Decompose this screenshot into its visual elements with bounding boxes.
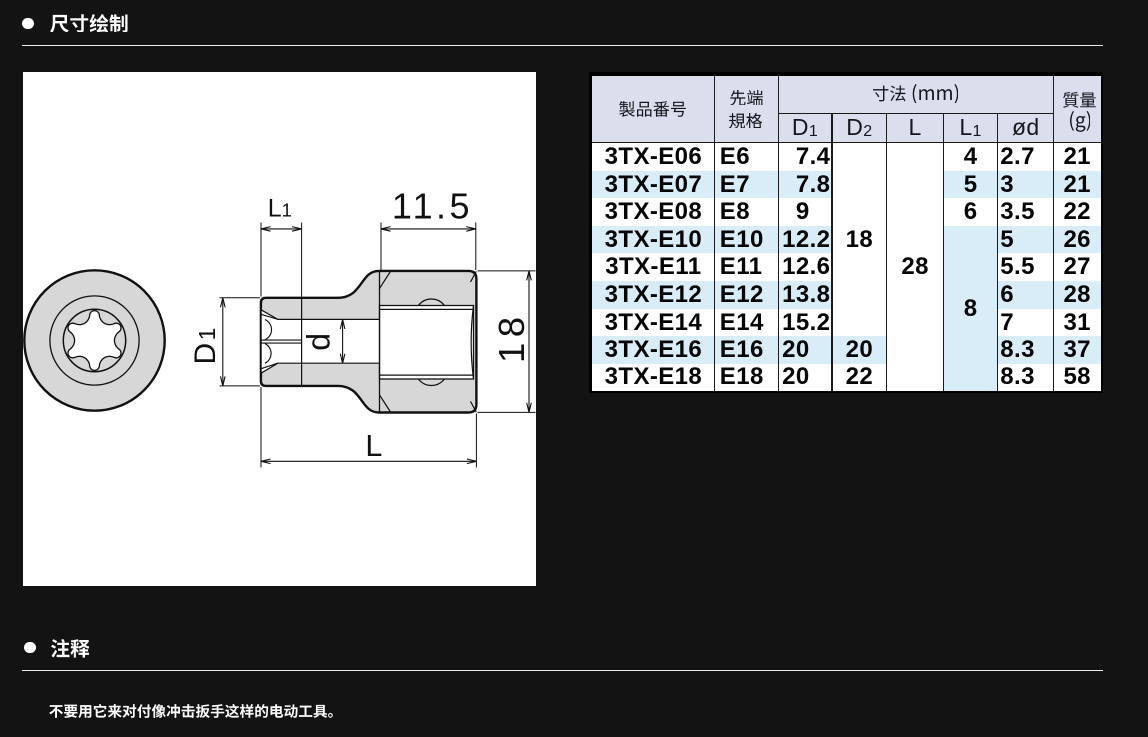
svg-text:d: d xyxy=(300,333,336,351)
svg-text:11.5: 11.5 xyxy=(392,185,473,226)
svg-text:L: L xyxy=(365,429,382,463)
svg-text:D1: D1 xyxy=(189,325,222,364)
svg-text:L1: L1 xyxy=(268,195,292,223)
svg-text:18: 18 xyxy=(491,311,532,363)
